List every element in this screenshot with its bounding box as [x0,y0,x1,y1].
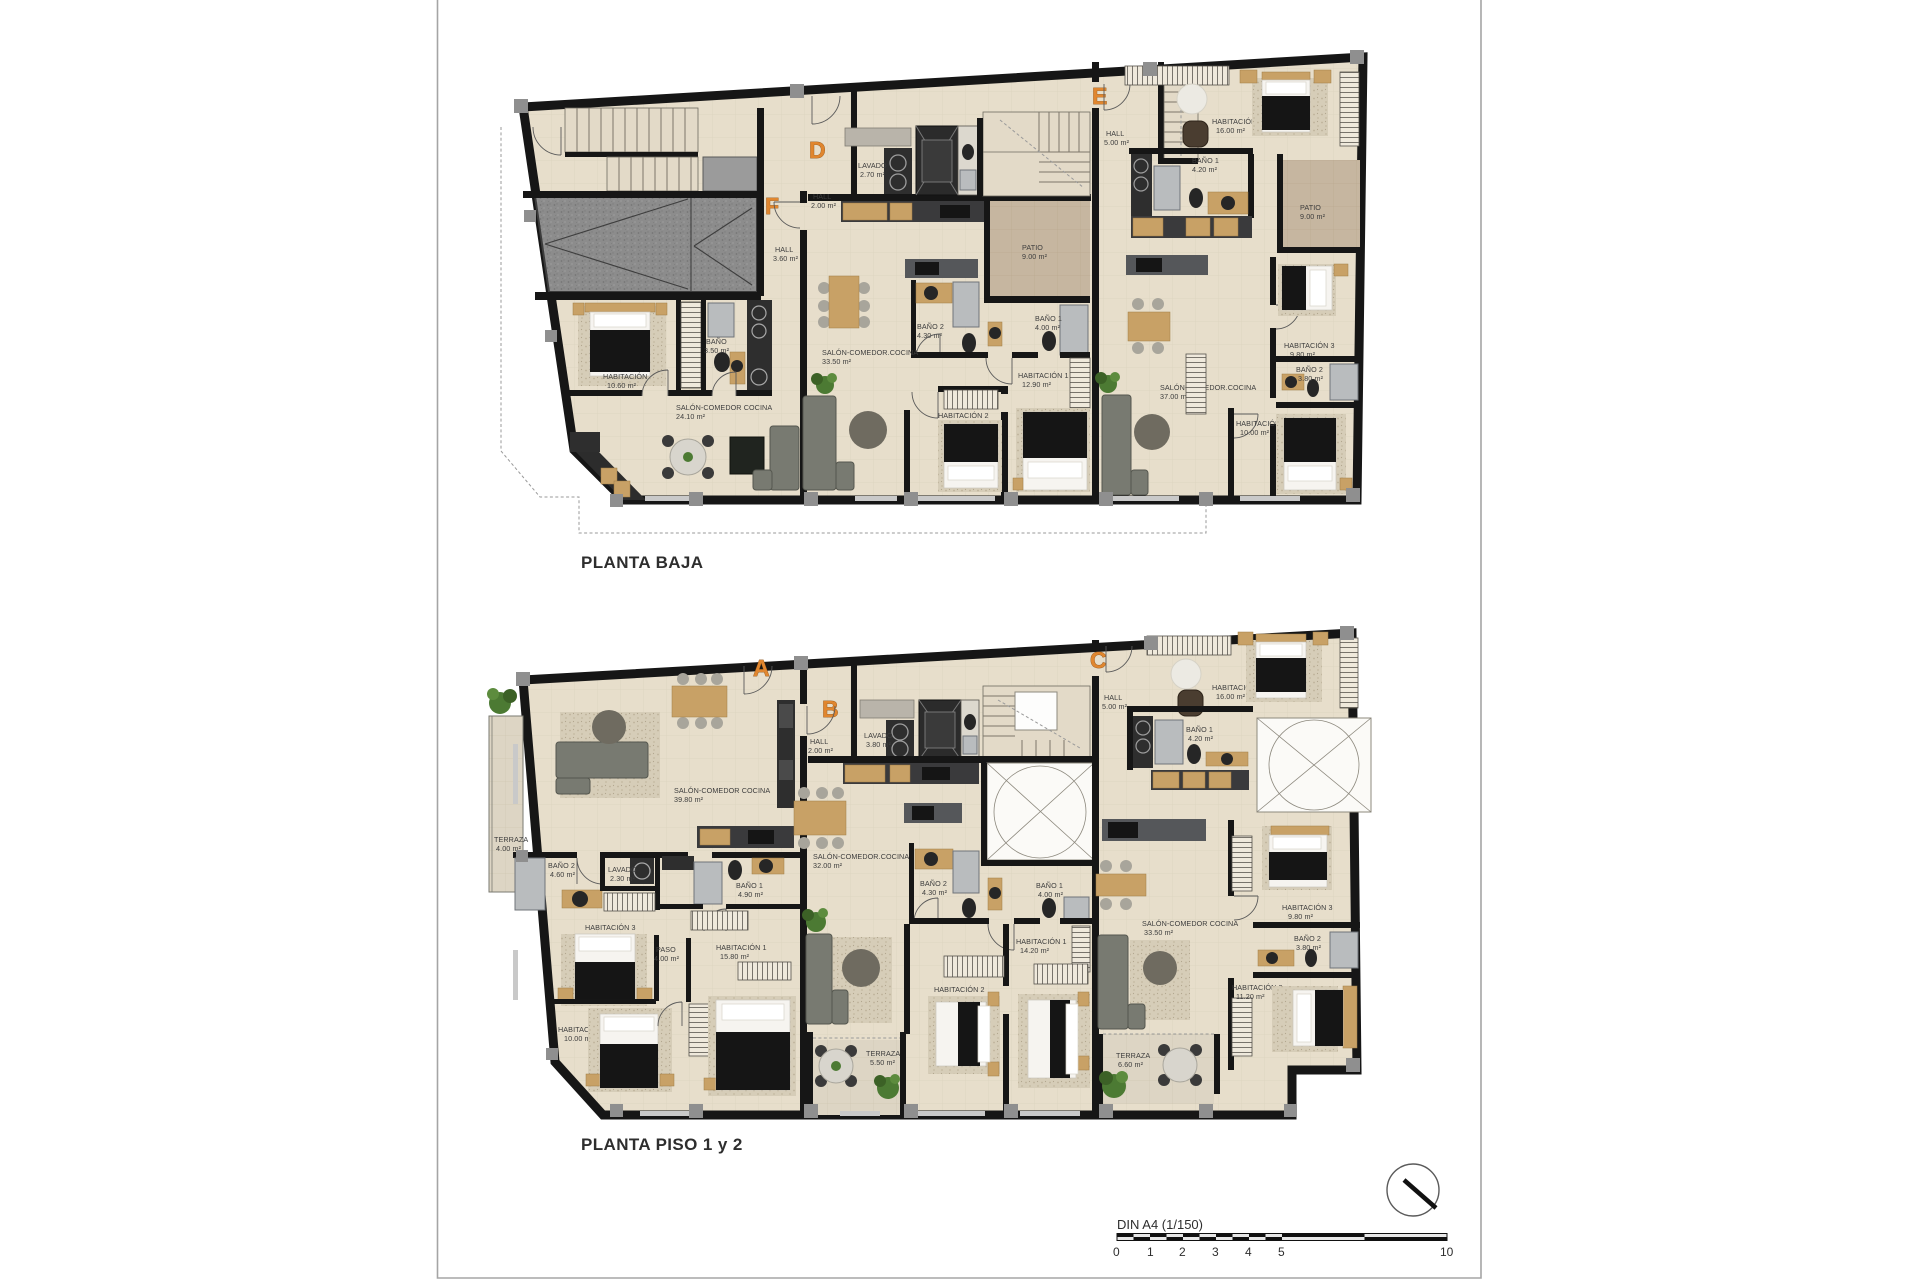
svg-text:2.00 m²: 2.00 m² [811,201,837,210]
svg-text:3: 3 [1212,1245,1219,1259]
svg-text:3.60 m²: 3.60 m² [773,254,799,263]
svg-text:HABITACIÓN 2: HABITACIÓN 2 [938,411,989,420]
svg-text:SALÓN-COMEDOR COCINA: SALÓN-COMEDOR COCINA [676,403,772,412]
svg-text:LAVADO: LAVADO [608,865,637,874]
svg-text:3.50 m²: 3.50 m² [704,346,730,355]
svg-text:BAÑO 2: BAÑO 2 [548,861,575,870]
svg-text:BAÑO 1: BAÑO 1 [1192,156,1219,165]
svg-text:16.00 m²: 16.00 m² [1216,692,1246,701]
svg-text:0: 0 [1113,1245,1120,1259]
svg-text:2.00 m²: 2.00 m² [808,746,834,755]
svg-text:16.00 m²: 16.00 m² [1216,126,1246,135]
svg-text:4.00 m²: 4.00 m² [1038,890,1064,899]
svg-text:11.20 m²: 11.20 m² [1236,992,1265,1001]
svg-text:HALL: HALL [1104,693,1122,702]
svg-text:SALÓN-COMEDOR.COCINA: SALÓN-COMEDOR.COCINA [813,852,909,861]
svg-text:TERRAZA: TERRAZA [494,835,528,844]
svg-text:TERRAZA: TERRAZA [866,1049,900,1058]
svg-text:BAÑO 1: BAÑO 1 [1036,881,1063,890]
svg-text:37.00 m²: 37.00 m² [1160,392,1190,401]
svg-text:2.70 m²: 2.70 m² [860,170,886,179]
svg-text:4.00 m²: 4.00 m² [654,954,680,963]
svg-text:HABITACIÓN: HABITACIÓN [603,372,647,381]
svg-text:SALÓN-COMEDOR.COCINA: SALÓN-COMEDOR.COCINA [822,348,918,357]
svg-text:12.90 m²: 12.90 m² [1022,380,1052,389]
svg-text:39.80 m²: 39.80 m² [674,795,704,804]
svg-text:4: 4 [1245,1245,1252,1259]
svg-text:BAÑO 1: BAÑO 1 [1035,314,1062,323]
svg-text:4.20 m²: 4.20 m² [1188,734,1214,743]
svg-text:BAÑO 1: BAÑO 1 [736,881,763,890]
svg-text:5.50 m²: 5.50 m² [870,1058,896,1067]
svg-text:15.80 m²: 15.80 m² [720,952,750,961]
svg-text:B: B [822,696,839,722]
svg-text:DIN A4 (1/150): DIN A4 (1/150) [1117,1217,1203,1232]
svg-text:9.80 m²: 9.80 m² [1288,912,1314,921]
svg-text:PATIO: PATIO [1022,243,1043,252]
svg-text:SALÓN-COMEDOR.COCINA: SALÓN-COMEDOR.COCINA [1160,383,1256,392]
svg-text:HALL: HALL [1106,129,1124,138]
svg-text:HALL: HALL [775,245,793,254]
svg-text:TERRAZA: TERRAZA [1116,1051,1150,1060]
svg-text:BAÑO 2: BAÑO 2 [920,879,947,888]
svg-text:A: A [753,655,770,681]
svg-text:6.60 m²: 6.60 m² [1118,1060,1144,1069]
svg-text:32.00 m²: 32.00 m² [813,861,843,870]
svg-text:BAÑO 2: BAÑO 2 [917,322,944,331]
svg-text:10: 10 [1440,1245,1454,1259]
svg-text:HABITACIÓN 2: HABITACIÓN 2 [934,985,985,994]
svg-text:24.10 m²: 24.10 m² [676,412,706,421]
svg-text:3.80 m²: 3.80 m² [866,740,892,749]
svg-text:HABITACIÓN 3: HABITACIÓN 3 [1282,903,1333,912]
svg-text:5.00 m²: 5.00 m² [1104,138,1130,147]
svg-text:SALÓN-COMEDOR COCINA: SALÓN-COMEDOR COCINA [674,786,770,795]
svg-text:D: D [809,137,826,163]
svg-text:3.80 m²: 3.80 m² [1296,943,1322,952]
svg-text:BAÑO 1: BAÑO 1 [1186,725,1213,734]
svg-text:4.60 m²: 4.60 m² [550,870,576,879]
svg-text:HABITACIÓN 3: HABITACIÓN 3 [585,923,636,932]
svg-text:5: 5 [1278,1245,1285,1259]
svg-text:4.20 m²: 4.20 m² [1192,165,1218,174]
svg-text:E: E [1092,83,1107,109]
svg-text:HABITACIÓN 1: HABITACIÓN 1 [1016,937,1067,946]
svg-text:33.50 m²: 33.50 m² [1144,928,1174,937]
svg-text:BAÑO: BAÑO [706,337,727,346]
svg-text:PATIO: PATIO [1300,203,1321,212]
svg-text:4.30 m²: 4.30 m² [922,888,948,897]
svg-text:9.00 m²: 9.00 m² [1022,252,1048,261]
svg-text:LAVADO: LAVADO [858,161,887,170]
svg-text:14.20 m²: 14.20 m² [1020,946,1050,955]
svg-text:1: 1 [1147,1245,1154,1259]
svg-text:PASO: PASO [656,945,676,954]
svg-text:HALL: HALL [813,192,831,201]
svg-text:PLANTA BAJA: PLANTA BAJA [581,553,703,572]
svg-text:LAVADO: LAVADO [864,731,893,740]
svg-text:C: C [1090,647,1107,673]
svg-text:PLANTA PISO 1 y 2: PLANTA PISO 1 y 2 [581,1135,743,1154]
svg-text:BAÑO 2: BAÑO 2 [1294,934,1321,943]
svg-text:BAÑO 2: BAÑO 2 [1296,365,1323,374]
svg-text:HALL: HALL [810,737,828,746]
svg-text:2: 2 [1179,1245,1186,1259]
svg-text:HABITACIÓN 1: HABITACIÓN 1 [716,943,767,952]
svg-text:9.00 m²: 9.00 m² [1300,212,1326,221]
svg-text:SALÓN-COMEDOR COCINA: SALÓN-COMEDOR COCINA [1142,919,1238,928]
svg-text:10.60 m²: 10.60 m² [607,381,637,390]
svg-text:33.50 m²: 33.50 m² [822,357,852,366]
svg-text:10.00 m²: 10.00 m² [1240,428,1270,437]
svg-text:5.00 m²: 5.00 m² [1102,702,1128,711]
svg-text:4.00 m²: 4.00 m² [1035,323,1061,332]
svg-text:4.90 m²: 4.90 m² [738,890,764,899]
svg-text:3.80 m²: 3.80 m² [1298,374,1324,383]
svg-text:4.30 m²: 4.30 m² [917,331,943,340]
svg-text:HABITACIÓN 1: HABITACIÓN 1 [1018,371,1069,380]
svg-text:2.30 m²: 2.30 m² [610,874,636,883]
svg-text:HABITACIÓN 3: HABITACIÓN 3 [1284,341,1335,350]
